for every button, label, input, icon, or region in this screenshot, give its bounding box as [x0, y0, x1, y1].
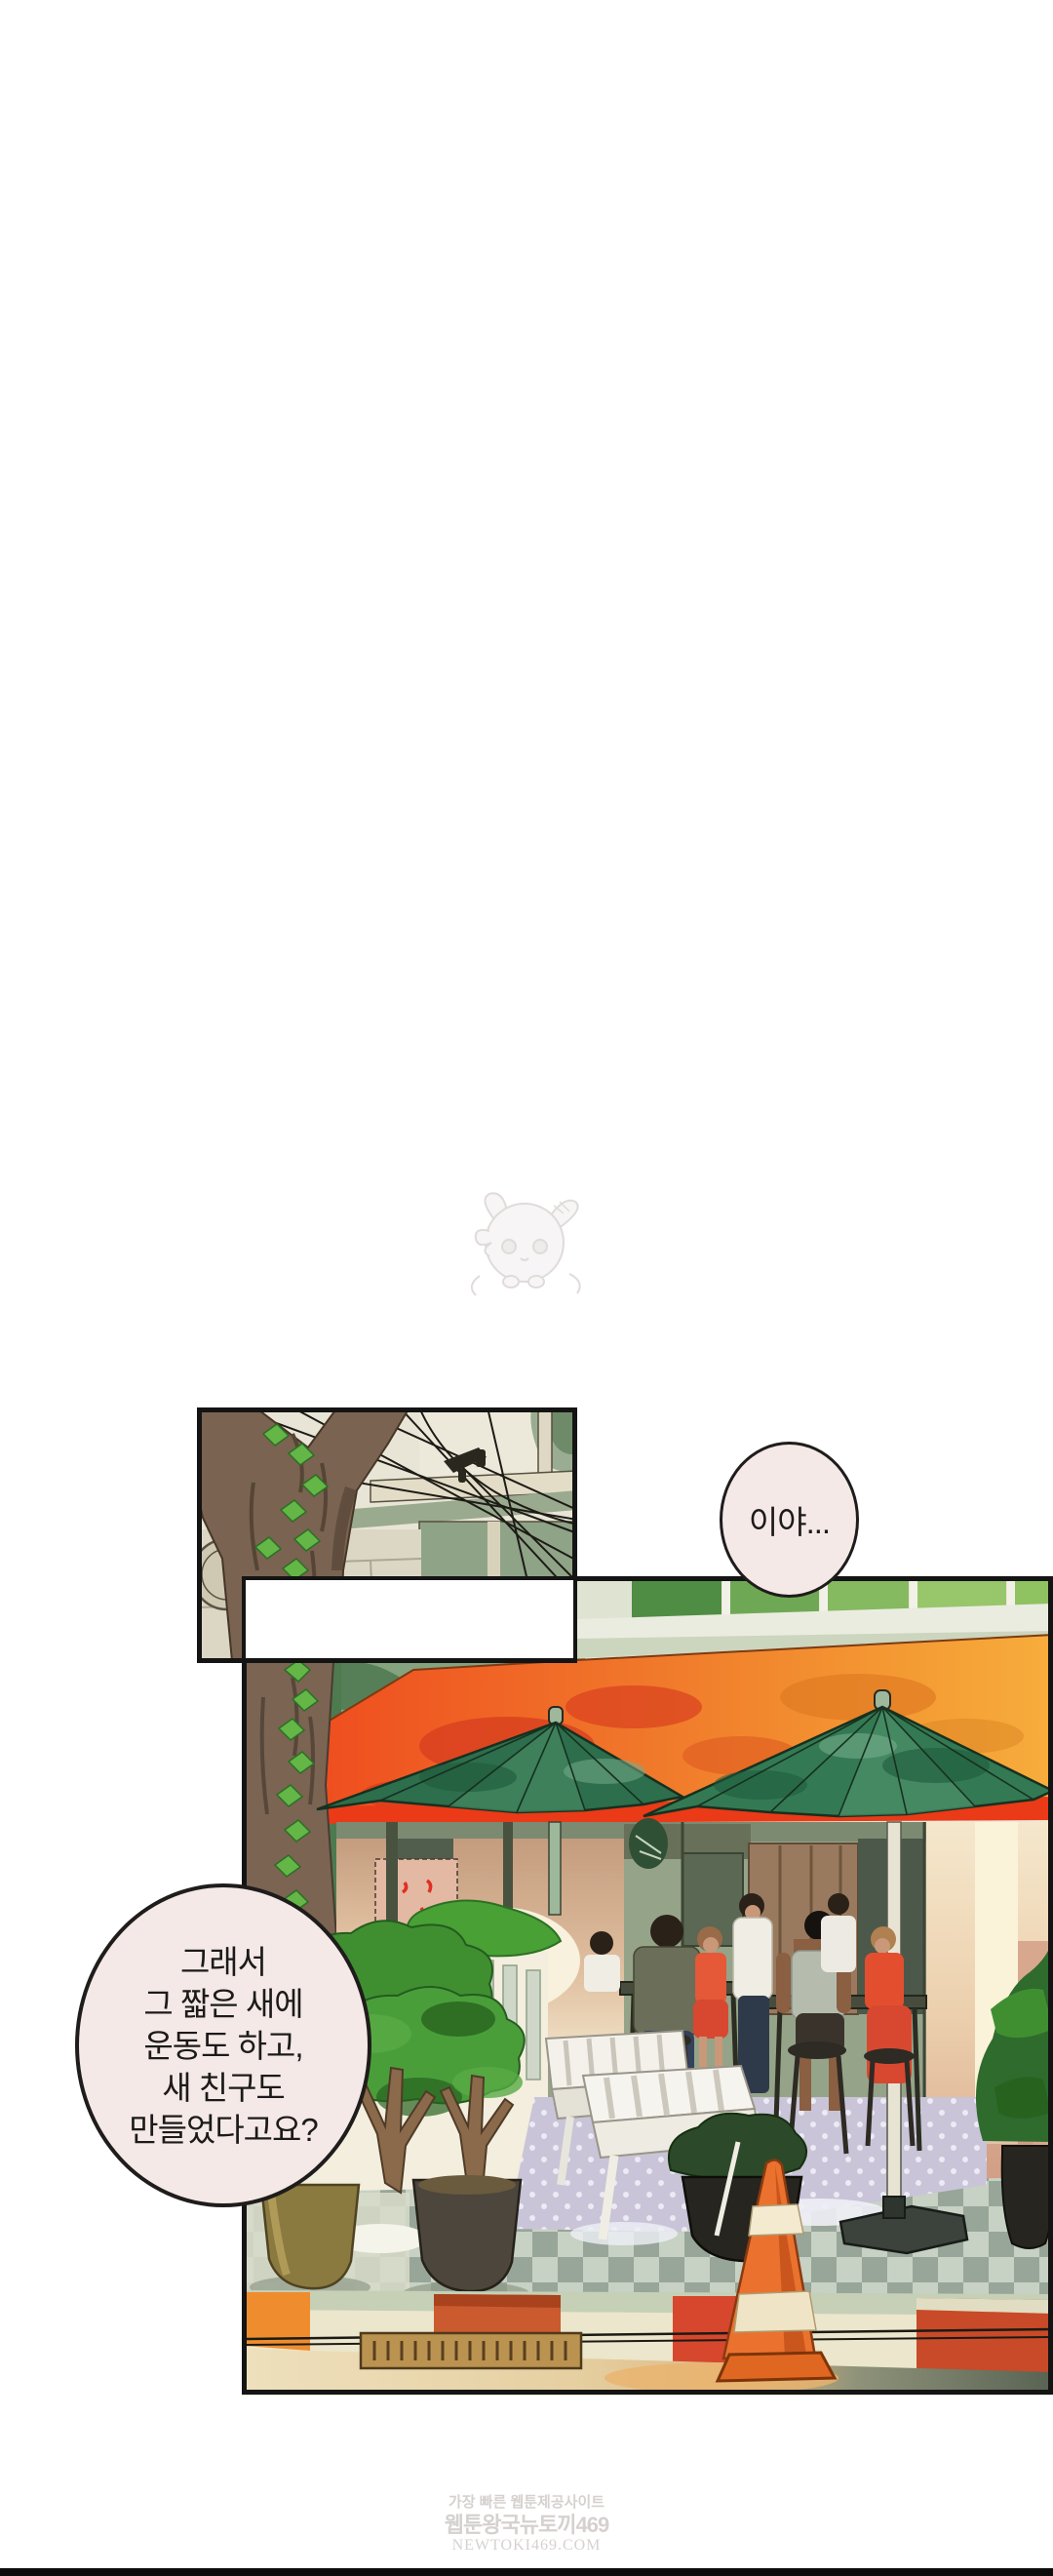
drain-grate — [361, 2333, 581, 2368]
speech-bubble-left-line-5: 만들었다고요? — [129, 2109, 318, 2151]
person-standing-white-shirt — [733, 1893, 772, 2093]
blank-speech-box — [242, 1576, 577, 1662]
speech-bubble-right: 이야... — [720, 1442, 859, 1598]
umbrella-pole-left — [549, 1822, 561, 1915]
pot-center — [413, 2180, 521, 2291]
speech-bubble-left-line-4: 새 친구도 — [129, 2067, 318, 2109]
speech-bubble-left-text: 그래서 그 짧은 새에 운동도 하고, 새 친구도 만들었다고요? — [129, 1941, 318, 2151]
panel-main — [242, 1576, 1053, 2396]
speech-bubble-left-line-3: 운동도 하고, — [129, 2025, 318, 2067]
speech-bubble-left-line-2: 그 짧은 새에 — [129, 1983, 318, 2025]
watermark-line-2: 웹툰왕국뉴토끼469 — [429, 2514, 624, 2536]
speech-bubble-left-line-1: 그래서 — [129, 1941, 318, 1983]
watermark-line-1: 가장 빠른 웹툰제공사이트 — [429, 2495, 624, 2511]
floor-sheen-2 — [570, 2222, 678, 2245]
watermark: 가장 빠른 웹툰제공사이트 웹툰왕국뉴토끼469 NEWTOKI469.COM — [0, 1192, 1053, 1377]
page-background: { "page": {"width": 1080, "height": 2641… — [0, 0, 1053, 2576]
speech-bubble-left: 그래서 그 짧은 새에 운동도 하고, 새 친구도 만들었다고요? — [75, 1883, 371, 2207]
watermark-line-3: NEWTOKI469.COM — [429, 2538, 624, 2555]
watermark-mascot-icon — [439, 1192, 614, 1307]
bottom-panel-divider — [0, 2568, 1053, 2576]
speech-bubble-right-text: 이야... — [749, 1496, 830, 1543]
